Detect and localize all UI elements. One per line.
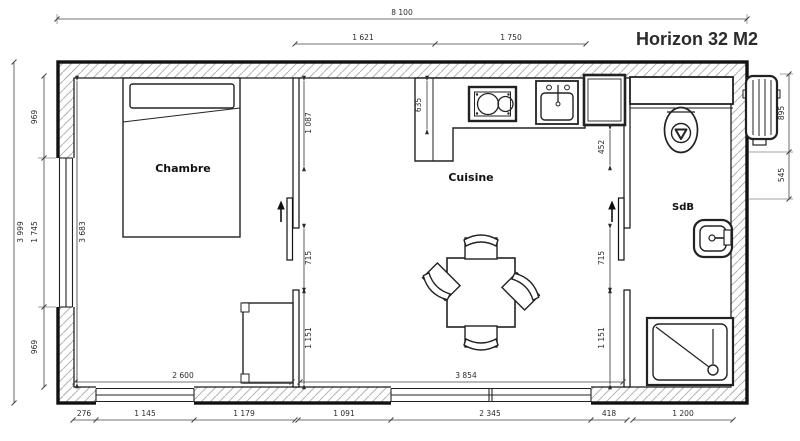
hob-icon xyxy=(469,87,516,121)
dim-partition2-top: 452 xyxy=(597,140,606,155)
bedroom-window xyxy=(96,385,194,405)
fridge xyxy=(584,75,625,125)
kitchen-bay-window xyxy=(391,385,591,405)
wardrobe xyxy=(243,303,293,383)
sink-icon xyxy=(536,81,578,124)
dim-partition2-bottom: 1 151 xyxy=(597,327,606,349)
plan-title: Horizon 32 M2 xyxy=(636,29,758,49)
dim-door1-opening: 715 xyxy=(304,251,313,266)
door-direction-arrows xyxy=(277,201,616,223)
partition-bedroom-kitchen xyxy=(293,78,299,228)
floor-plan-page: Chambre Cuisine SdB Horizon 32 M2 xyxy=(0,0,800,441)
dim-bottom-4: 1 091 xyxy=(333,409,355,418)
pillow xyxy=(130,84,234,108)
bathroom-cabinet xyxy=(630,77,733,104)
dim-right-top: 895 xyxy=(777,106,786,121)
dim-kitchen-width: 3 854 xyxy=(455,371,477,380)
dim-left-mid: 1 745 xyxy=(30,221,39,243)
kitchen-label: Cuisine xyxy=(448,171,493,184)
dim-bottom-1: 276 xyxy=(77,409,92,418)
door-arrow-icon xyxy=(608,201,616,223)
dim-bedroom-width: 2 600 xyxy=(172,371,194,380)
partition-kitchen-bathroom xyxy=(624,290,630,387)
dim-door2-opening: 715 xyxy=(597,251,606,266)
dim-top-seg1: 1 621 xyxy=(352,33,374,42)
dim-partition1-top: 1 087 xyxy=(304,112,313,134)
dining-table xyxy=(447,258,515,327)
dim-partition1-bottom: 1 151 xyxy=(304,327,313,349)
door-arrow-icon xyxy=(277,201,285,223)
kitchen-furniture xyxy=(415,75,625,350)
left-wall-window xyxy=(56,158,76,307)
dim-counter-depth: 635 xyxy=(414,98,423,113)
sliding-door-leaf-bedroom xyxy=(287,198,293,260)
dim-overall-width: 8 100 xyxy=(391,8,413,17)
dim-bottom-3: 1 179 xyxy=(233,409,255,418)
dim-bottom-7: 1 200 xyxy=(672,409,694,418)
water-heater-icon xyxy=(743,76,780,145)
dim-bottom-5: 2 345 xyxy=(479,409,501,418)
dim-bedroom-height: 3 683 xyxy=(78,221,87,243)
bedroom-furniture xyxy=(123,78,293,383)
toilet-icon xyxy=(665,108,698,153)
bathroom-furniture xyxy=(630,76,780,385)
partition-bedroom-kitchen xyxy=(293,290,299,387)
dim-top-seg2: 1 750 xyxy=(500,33,522,42)
dim-overall-height: 3 999 xyxy=(16,221,25,243)
bedroom-label: Chambre xyxy=(155,162,211,175)
shower-icon xyxy=(647,318,733,385)
washbasin-icon xyxy=(694,220,732,257)
bathroom-label: SdB xyxy=(672,202,694,213)
dim-left-top: 969 xyxy=(30,110,39,125)
dim-bottom-6: 418 xyxy=(602,409,617,418)
sliding-door-leaf-bathroom xyxy=(619,198,625,260)
floor-plan-drawing: Chambre Cuisine SdB Horizon 32 M2 xyxy=(0,0,800,441)
dim-bottom-2: 1 145 xyxy=(134,409,156,418)
wardrobe-handle xyxy=(241,303,249,312)
dim-right-mid: 545 xyxy=(777,168,786,183)
dim-left-bottom: 969 xyxy=(30,340,39,355)
